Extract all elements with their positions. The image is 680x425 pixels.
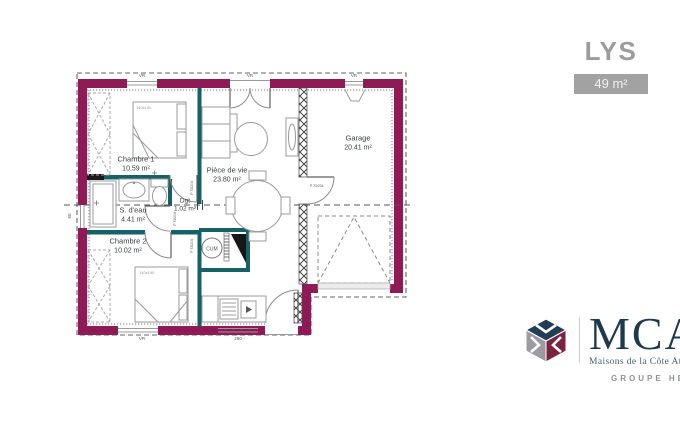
coffee-table (235, 123, 268, 156)
room-label-chambre2: Chambre 210.02 m² (109, 237, 146, 256)
door-spec-label: P 73/204 (190, 239, 194, 253)
window-width-label: 60 (67, 213, 72, 219)
chambre2-furniture (88, 250, 188, 322)
shutter-label: VR (351, 73, 358, 78)
wc (151, 179, 168, 187)
logo-group-name: GROUPE HEXAOM (611, 374, 680, 383)
wardrobe-chambre1 (88, 93, 110, 175)
door-spec-label: P 73/204 (190, 181, 194, 195)
garage-elements (318, 90, 390, 289)
mca-logo: MCA Maisons de la Côte Atlantique GROUPE… (522, 314, 680, 383)
bed-size-label: 140x190 (139, 270, 155, 275)
shutter-label: VR (247, 73, 254, 78)
water-heater-closet: CUM (202, 233, 246, 263)
floor-plan-page: CUM VR VR VR VR 260 60 P 73/204 P 73/204… (0, 0, 680, 425)
room-label-sdeau: S. d'eau4.41 m² (119, 206, 146, 225)
logo-divider (579, 317, 580, 363)
shutter-label: VR (139, 73, 146, 78)
window-width-label: 260 (234, 336, 242, 341)
plan-header: LYS 49 m² (574, 36, 648, 94)
wardrobe-chambre2 (88, 250, 110, 322)
room-label-degagement: Dgt1.02 m² (174, 198, 196, 215)
room-label-garage: Garage20.41 m² (344, 134, 372, 153)
kitchen (202, 296, 266, 322)
surface-area-badge: 49 m² (574, 74, 648, 94)
room-label-piece-de-vie: Pièce de vie23.80 m² (207, 166, 248, 185)
technical-duct (231, 234, 246, 263)
shutter-label: VR (139, 336, 146, 341)
door-spec-label: P 73/204 (310, 184, 324, 188)
plan-title: LYS (574, 36, 648, 67)
garage-door (318, 216, 390, 283)
logo-subtitle: Maisons de la Côte Atlantique (589, 357, 680, 367)
room-label-chambre1: Chambre 110.59 m² (117, 155, 154, 174)
bed-size-label: 140x190 (136, 105, 152, 110)
entrance-door (265, 290, 298, 323)
garage-service-door (307, 177, 334, 204)
logo-wordmark: MCA (589, 314, 680, 354)
bathroom-door (145, 206, 170, 231)
chimney-funnel (345, 90, 365, 101)
sofa (202, 107, 230, 158)
chambre2-door (145, 232, 171, 258)
water-heater-label: CUM (206, 247, 217, 253)
shower (90, 181, 116, 227)
dining-table (232, 181, 283, 232)
mca-cube-icon (522, 316, 570, 364)
